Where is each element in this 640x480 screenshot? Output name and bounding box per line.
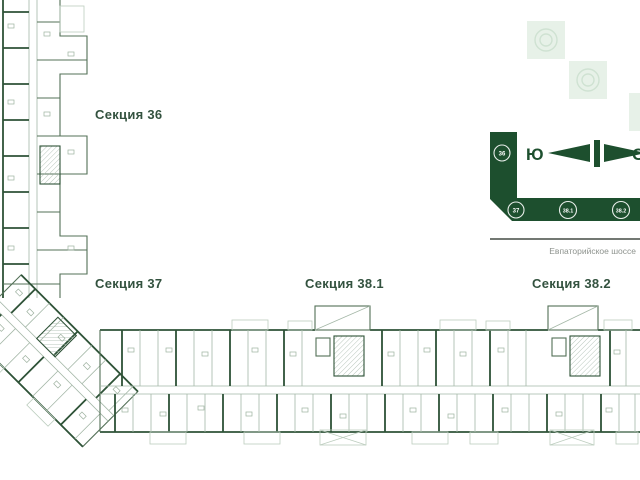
- balcony: [232, 320, 268, 330]
- compass-north-label: С: [632, 145, 640, 164]
- minimap-adjacent-section-1[interactable]: [527, 21, 565, 59]
- section-37-title: Секция 37: [95, 276, 162, 291]
- section-38-1-title: Секция 38.1: [305, 276, 384, 291]
- balcony: [0, 347, 4, 375]
- section-36-floorplan[interactable]: [3, 0, 87, 298]
- balcony: [244, 432, 280, 444]
- section-37-plan-diagonal[interactable]: [0, 275, 138, 454]
- road-label: Евпаторийское шоссе: [549, 246, 636, 256]
- balcony: [440, 320, 476, 330]
- balcony: [616, 432, 638, 444]
- balcony: [470, 432, 498, 444]
- minimap-marker-38-2-label: 38.2: [616, 208, 627, 214]
- compass-west-arrow-icon: [548, 144, 590, 162]
- balcony: [150, 432, 186, 444]
- minimap-marker-36-label: 36: [499, 152, 506, 158]
- minimap-marker-38-1-label: 38.1: [563, 208, 574, 214]
- plan-canvas: 36 37 38.1 38.2 Ю С: [0, 0, 640, 480]
- stair-tower-38-2: [548, 306, 600, 376]
- elevator-38-2: [552, 338, 566, 356]
- minimap-adjacent-section-2[interactable]: [569, 61, 607, 99]
- section-38-2-title: Секция 38.2: [532, 276, 611, 291]
- balcony: [60, 6, 84, 32]
- balcony: [412, 432, 448, 444]
- balcony: [288, 321, 312, 330]
- balcony: [27, 398, 55, 426]
- minimap: 36 37 38.1 38.2 Ю С: [490, 21, 640, 256]
- staircase-36: [40, 146, 60, 184]
- floor-plan-page: 36 37 38.1 38.2 Ю С: [0, 0, 640, 480]
- balcony: [486, 321, 510, 330]
- minimap-adjacent-section-3[interactable]: [629, 93, 640, 131]
- balcony: [604, 320, 632, 330]
- staircase-38-2: [570, 336, 600, 376]
- compass-south-label: Ю: [526, 145, 544, 164]
- lower-wing-straight[interactable]: [100, 306, 640, 445]
- compass: Ю С: [526, 140, 640, 167]
- elevator-38-1: [316, 338, 330, 356]
- stair-tower-38-1: [315, 306, 370, 376]
- lower-wing-floorplan[interactable]: [0, 275, 640, 454]
- minimap-marker-37-label: 37: [513, 209, 520, 215]
- section-36-title: Секция 36: [95, 107, 162, 122]
- staircase-38-1: [334, 336, 364, 376]
- compass-bar: [594, 140, 600, 167]
